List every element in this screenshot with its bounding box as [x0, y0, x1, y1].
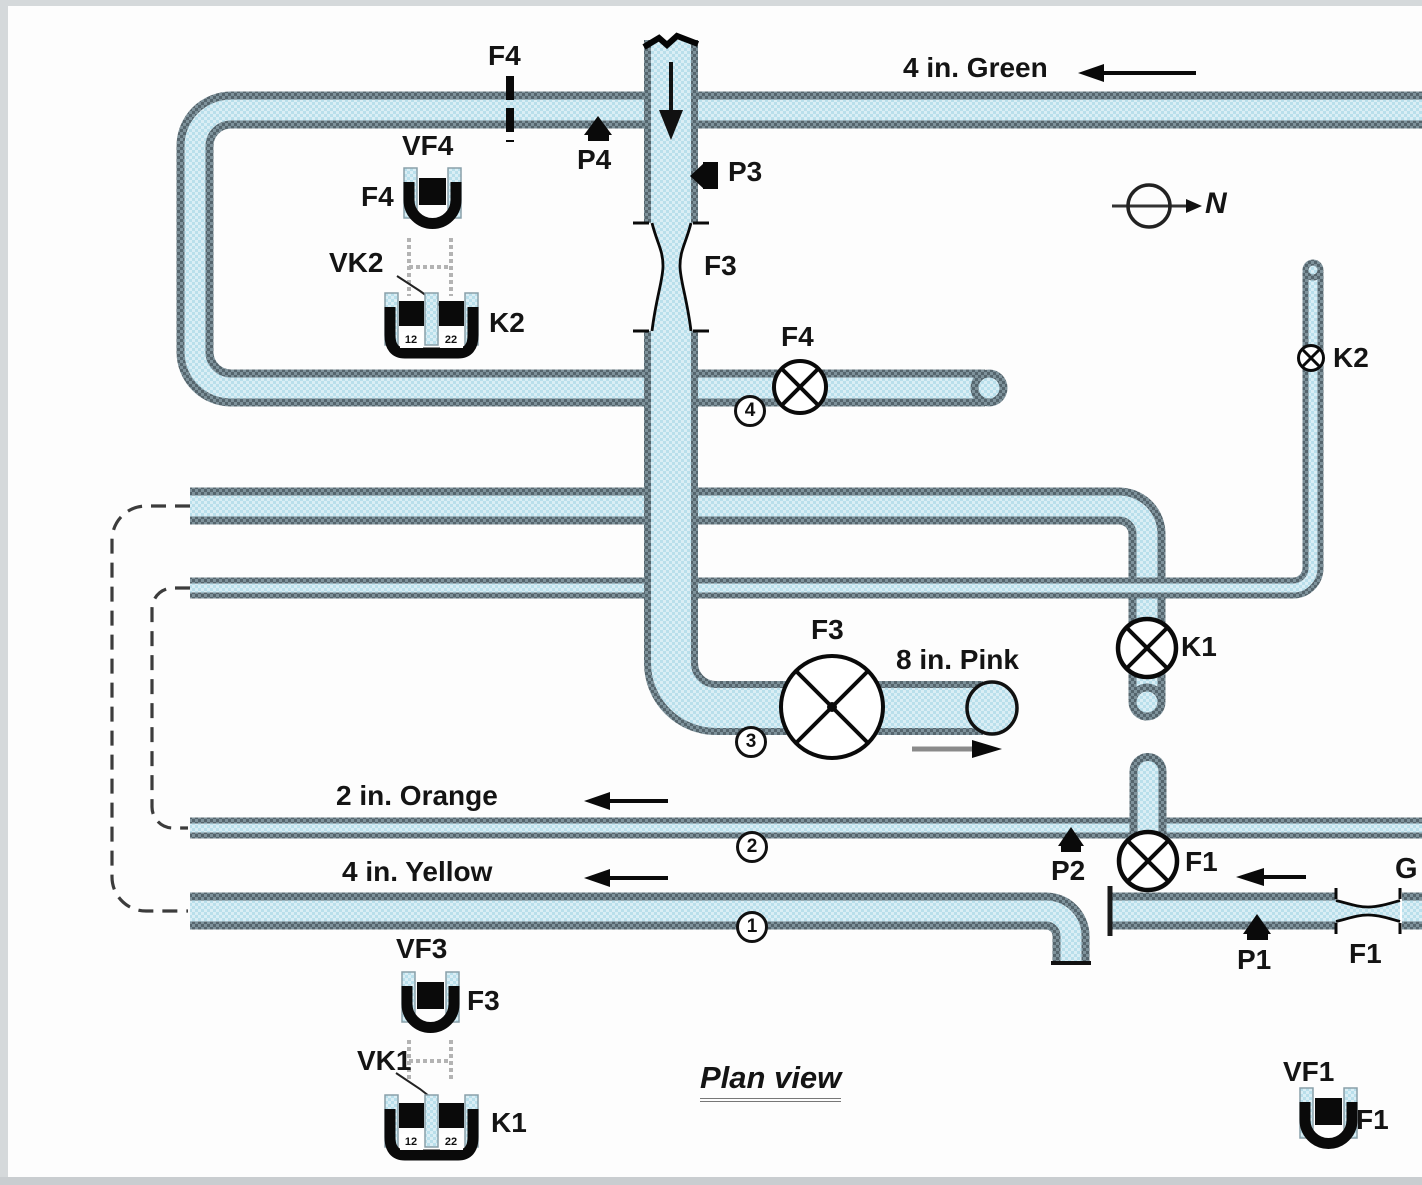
north-compass-icon	[1112, 185, 1202, 227]
valve-f1-icon	[1119, 832, 1177, 890]
arrow-yellow-left	[584, 869, 668, 887]
valve-f4-label: F4	[781, 323, 814, 351]
f4-station-label: F4	[488, 42, 521, 70]
valve-k2-icon	[1299, 346, 1324, 371]
venturi-f1-label: F1	[1349, 940, 1382, 968]
device-vf3-side-label: F3	[467, 987, 500, 1015]
device-vk2	[385, 293, 478, 353]
scan-edge-bottom	[0, 1177, 1422, 1185]
pipe-open-end	[967, 682, 1017, 734]
orange-pipe-label: 2 in. Orange	[336, 782, 498, 810]
vk2-channel-right: 22	[440, 333, 462, 347]
tap-p3-label: P3	[728, 158, 762, 186]
yellow-pipe-label: 4 in. Yellow	[342, 858, 492, 886]
venturi-f3-label: F3	[704, 252, 737, 280]
tap-p1-label: P1	[1237, 946, 1271, 974]
valve-f4-icon	[774, 361, 826, 413]
device-vf4-title: VF4	[402, 132, 453, 160]
device-vf4	[404, 168, 461, 224]
device-vk1-title: VK1	[357, 1047, 411, 1075]
pink-pipe-label: 8 in. Pink	[896, 646, 1019, 674]
station-3-badge: 3	[735, 726, 767, 758]
valve-f1-label: F1	[1185, 848, 1218, 876]
valve-f3-label: F3	[811, 616, 844, 644]
arrow-green-left	[1078, 64, 1196, 82]
vk1-channel-right: 22	[440, 1135, 462, 1149]
valve-k1-icon	[1118, 619, 1176, 677]
valve-k2-label: K2	[1333, 344, 1369, 372]
gray-pipe-partial-label: G	[1395, 855, 1418, 884]
scan-edge-top	[0, 0, 1422, 6]
diagram-caption: Plan view	[700, 1062, 841, 1102]
valve-f3-icon	[781, 656, 883, 758]
venturi-f1	[1336, 885, 1402, 937]
station-2-badge: 2	[736, 831, 768, 863]
device-vk1-side-label: K1	[491, 1109, 527, 1137]
pipe-yellow	[190, 911, 1091, 963]
instrument-link-bottom	[409, 1040, 451, 1082]
scan-edge-left	[0, 0, 8, 1185]
plan-view-diagram: F4 4 in. Green P4 P3 VF4 F4 VK2 K2 F3 N …	[0, 0, 1422, 1185]
green-pipe-label: 4 in. Green	[903, 54, 1048, 82]
station-1-badge: 1	[736, 911, 768, 943]
tap-p2-label: P2	[1051, 857, 1085, 885]
device-vk1	[385, 1095, 478, 1155]
arrow-gray-left	[1236, 868, 1306, 886]
arrow-pink-right	[912, 740, 1002, 758]
north-label: N	[1205, 189, 1227, 219]
tap-p4-label: P4	[577, 146, 611, 174]
arrow-orange-left	[584, 792, 668, 810]
vk2-channel-left: 12	[400, 333, 422, 347]
device-vf1-side-label: F1	[1356, 1106, 1389, 1134]
device-vk2-side-label: K2	[489, 309, 525, 337]
piping-artwork	[0, 0, 1422, 1185]
device-vf3	[402, 972, 459, 1028]
vk1-channel-left: 12	[400, 1135, 422, 1149]
device-vf1-title: VF1	[1283, 1058, 1334, 1086]
venturi-f3	[633, 223, 709, 331]
device-vf3-title: VF3	[396, 935, 447, 963]
station-4-badge: 4	[734, 395, 766, 427]
device-vk2-title: VK2	[329, 249, 383, 277]
dashed-connector-inner	[152, 588, 190, 828]
device-vf4-side-label: F4	[361, 183, 394, 211]
device-vf1	[1300, 1088, 1357, 1144]
valve-k1-label: K1	[1181, 633, 1217, 661]
